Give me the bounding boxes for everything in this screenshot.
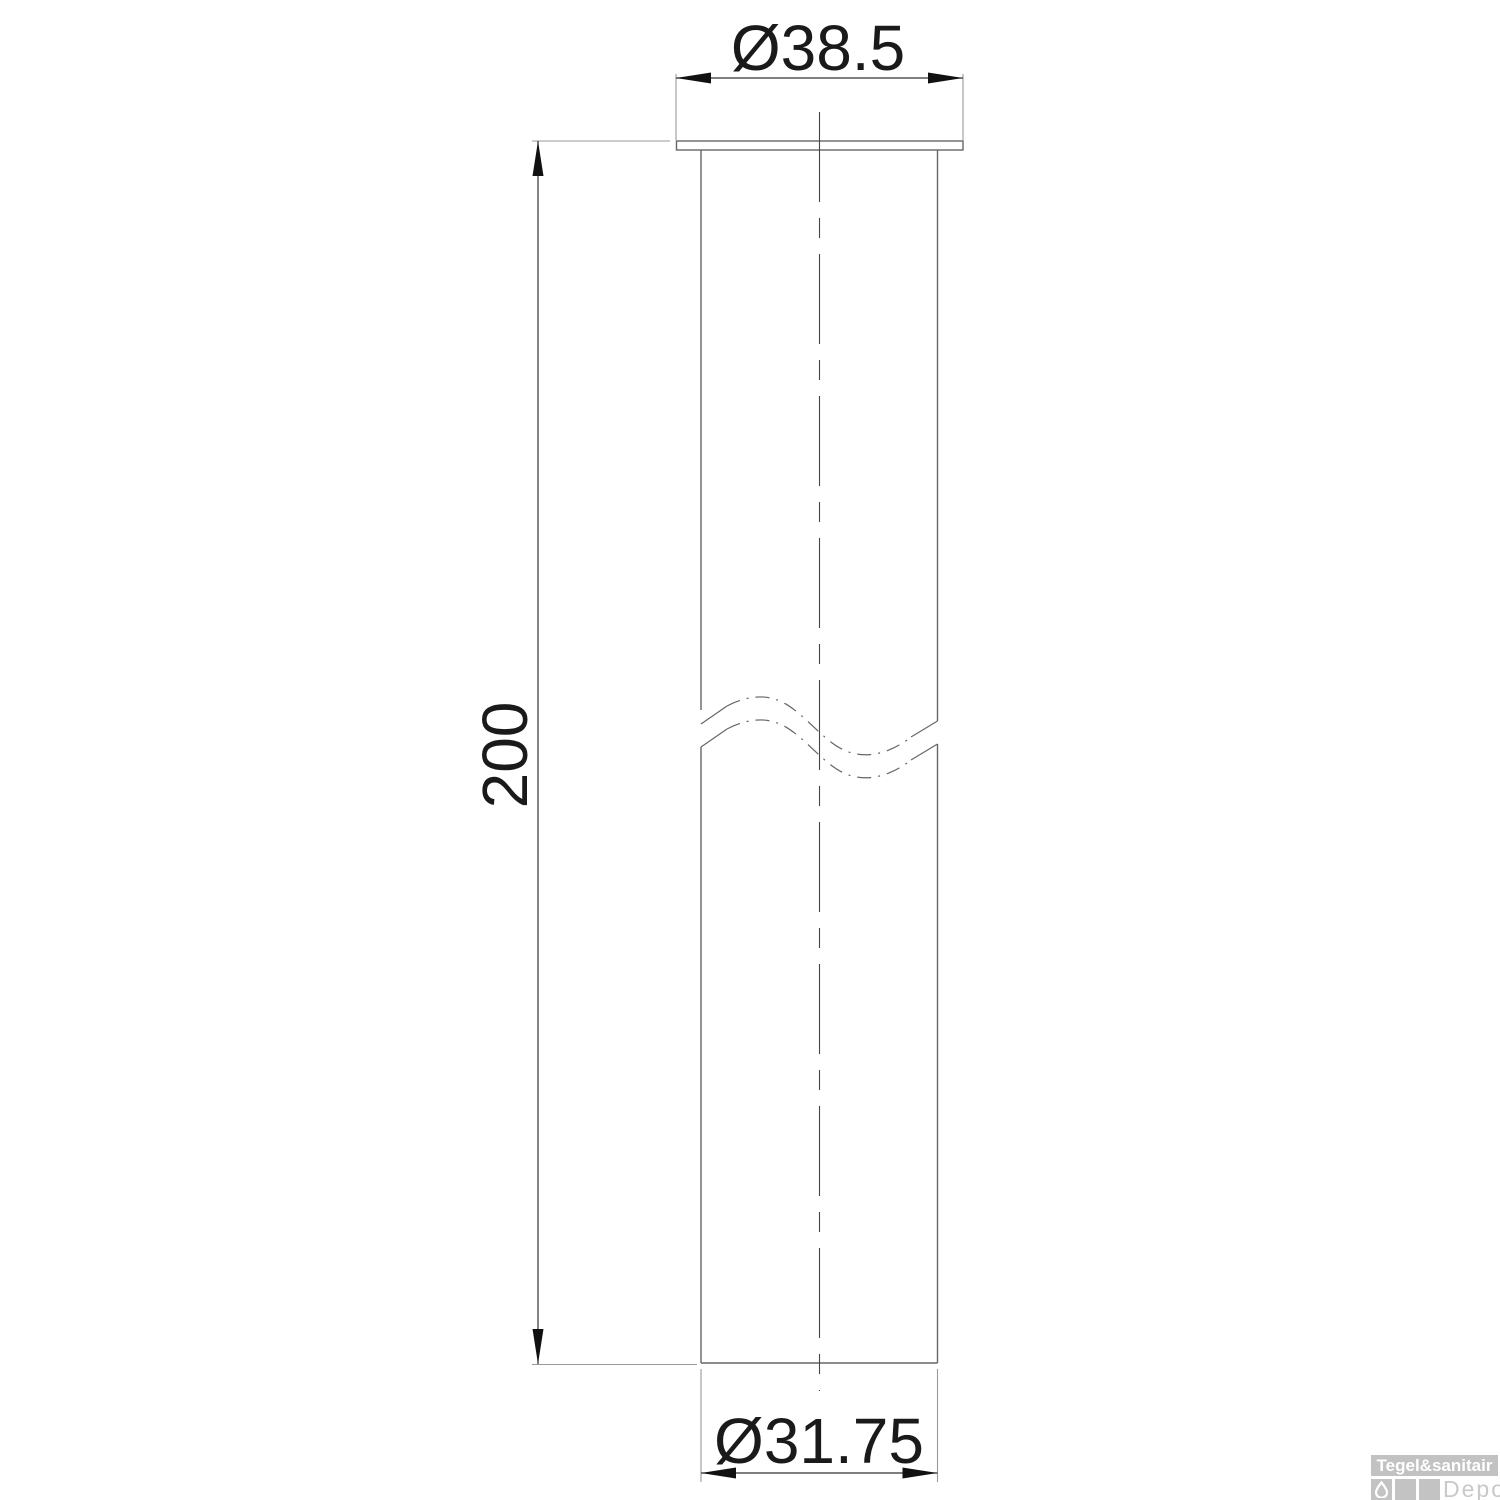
length-arrow-down xyxy=(533,1329,544,1364)
break-upper-stub-right xyxy=(911,721,938,737)
top-diameter-label: Ø38.5 xyxy=(731,12,905,84)
logo-brand-bar: Tegel&sanitair xyxy=(1371,1455,1498,1476)
length-label: 200 xyxy=(469,702,541,809)
technical-drawing-canvas: Ø38.5 200 Ø31.75 xyxy=(0,0,1500,1500)
logo-square-2 xyxy=(1395,1479,1416,1500)
logo-sub-brand-text: Depot xyxy=(1443,1479,1500,1500)
length-arrow-up xyxy=(533,141,544,176)
logo-brand-text: Tegel&sanitair xyxy=(1377,1456,1493,1475)
break-lower-stub-right xyxy=(911,744,938,760)
top-arrow-right xyxy=(928,73,963,84)
break-upper-stub-left xyxy=(701,706,727,724)
watermark-logo: Tegel&sanitair Depot xyxy=(1371,1455,1498,1500)
bottom-diameter-label: Ø31.75 xyxy=(714,1405,924,1477)
logo-square-drop xyxy=(1371,1479,1392,1500)
dimension-length: 200 xyxy=(469,141,697,1365)
flanged-tube-drawing: Ø38.5 200 Ø31.75 xyxy=(0,0,1500,1500)
break-lower-stub-left xyxy=(701,729,727,747)
top-arrow-left xyxy=(676,73,711,84)
dimension-bottom-diameter: Ø31.75 xyxy=(701,1369,938,1482)
logo-square-3 xyxy=(1419,1479,1440,1500)
logo-bottom-row: Depot xyxy=(1371,1479,1498,1500)
water-drop-icon xyxy=(1374,1481,1389,1498)
